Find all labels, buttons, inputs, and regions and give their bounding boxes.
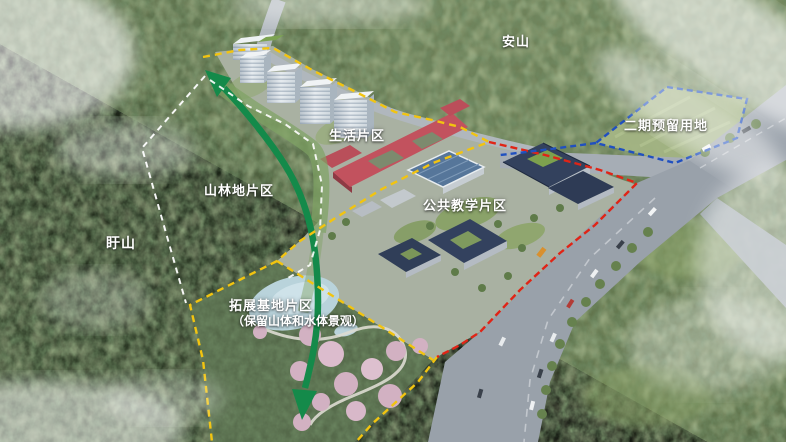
aerial-masterplan-rendering: 安山 二期预留用地 生活片区 山林地片区 盱山 公共教学片区 拓展基地片区 （保… xyxy=(0,0,786,442)
masterplan-scene xyxy=(0,0,786,442)
